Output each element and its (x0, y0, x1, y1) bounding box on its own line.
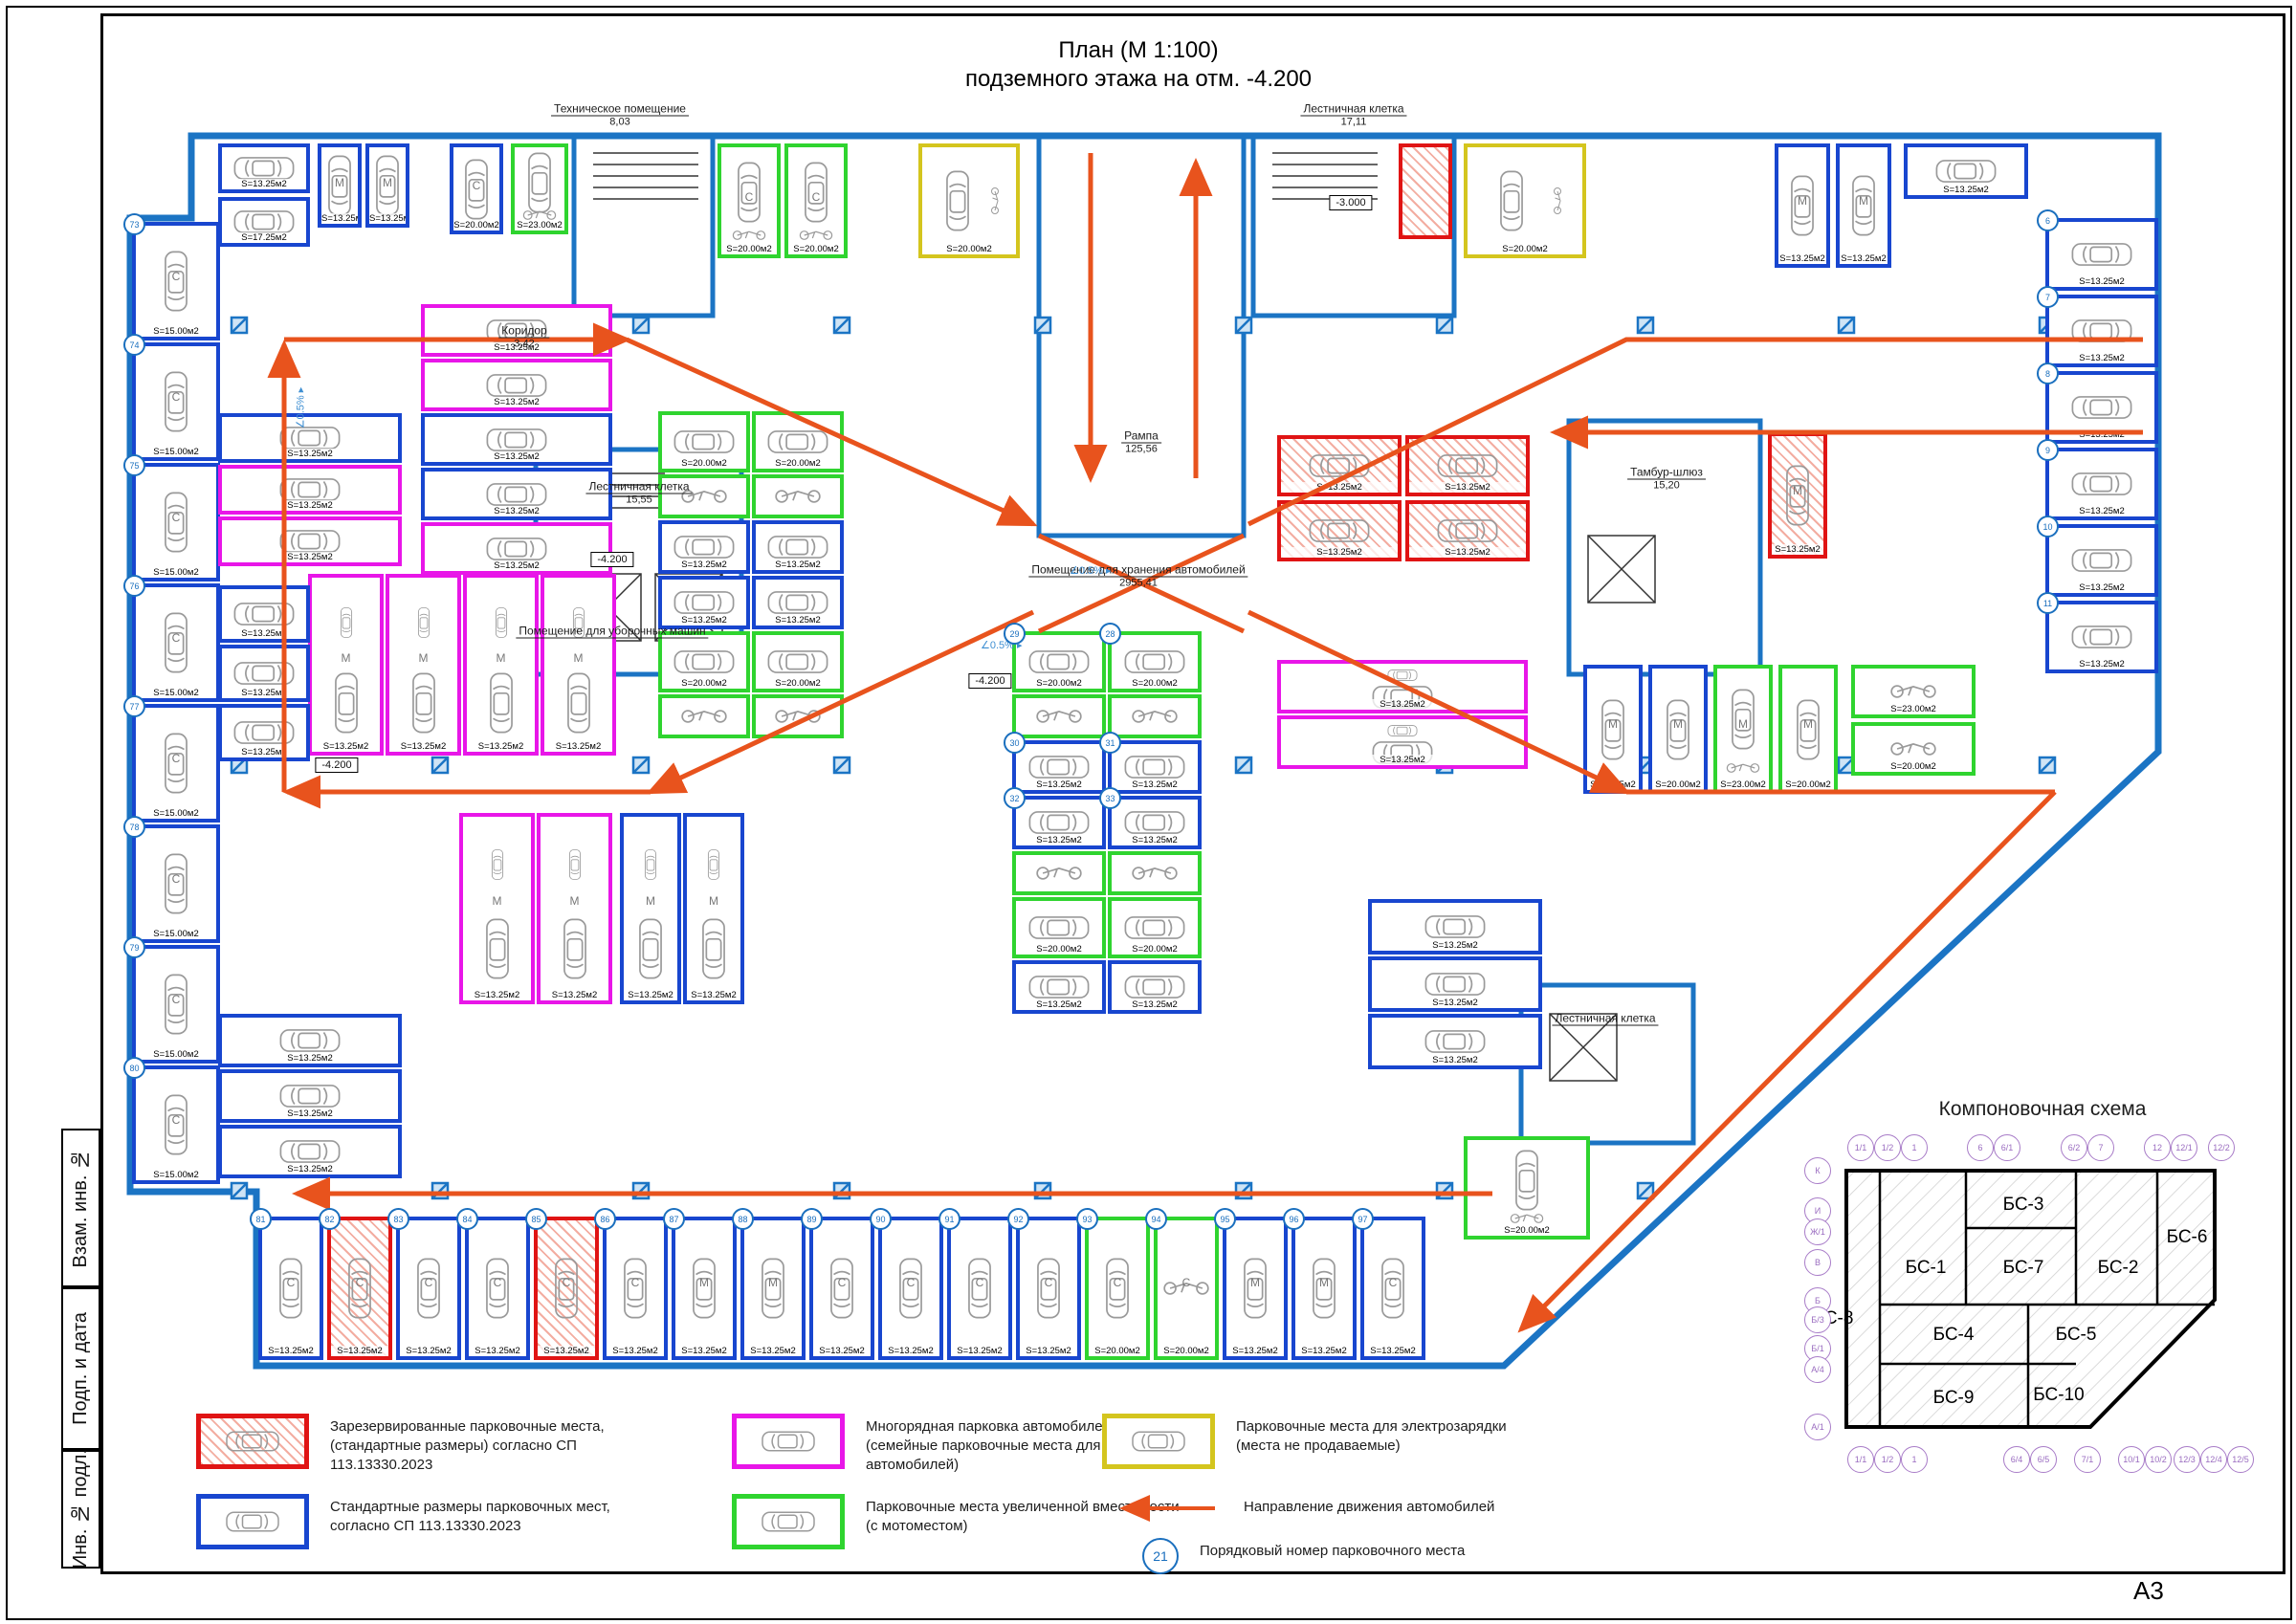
parking-stall: СS=15.00м2 (132, 824, 220, 943)
axis-bubble-10/2: 10/2 (2145, 1446, 2172, 1473)
car-top-view-icon (232, 657, 297, 690)
parking-stall: СS=20.00м2 (1154, 1217, 1219, 1360)
stall-area-label: S=20.00м2 (662, 678, 746, 689)
parking-stall: СS=20.00м2 (1085, 1217, 1150, 1360)
parking-stall (658, 694, 750, 738)
stall-number-bubble: 74 (123, 334, 145, 356)
parking-stall: МS=23.00м2 (1713, 665, 1773, 794)
axis-bubble-К: К (1804, 1157, 1831, 1184)
car-top-view-icon (485, 669, 518, 736)
stall-type-letter: М (768, 1276, 778, 1289)
stall-area-label: S=15.00м2 (136, 1170, 216, 1180)
axis-bubble-Б/3: Б/3 (1804, 1306, 1831, 1333)
stall-area-label: S=13.25м2 (1772, 544, 1823, 555)
stall-number-bubble: 84 (456, 1208, 478, 1230)
parking-stall: S=20.00м2 (918, 143, 1020, 258)
stall-number-bubble: 32 (1004, 787, 1026, 809)
parking-stall: СS=15.00м2 (132, 342, 220, 461)
axis-bubble-12/5: 12/5 (2227, 1446, 2254, 1473)
parking-stall: МS=13.25м2 (1223, 1217, 1288, 1360)
stall-type-letter: С (287, 1276, 296, 1289)
parking-stall: СS=13.25м2 (396, 1217, 461, 1360)
stall-type-letter: С (172, 752, 181, 765)
stall-type-letter: М (570, 894, 580, 908)
parking-stall: S=13.25м2 (218, 516, 402, 566)
parking-stall: СS=15.00м2 (132, 945, 220, 1064)
car-top-view-icon (672, 646, 737, 678)
parking-stall: МS=13.25м2 (1583, 665, 1643, 794)
parking-stall: СS=15.00м2 (132, 463, 220, 582)
stall-area-label: S=13.25м2 (687, 990, 740, 1000)
stall-area-label: S=13.25м2 (1295, 1346, 1353, 1356)
parking-stall: S=20.00м2 (1012, 897, 1106, 958)
stall-area-label: S=13.25м2 (331, 1346, 388, 1356)
stall-type-letter: М (1803, 717, 1813, 731)
legend-swatch-extended (732, 1494, 845, 1549)
car-top-view-icon (765, 426, 830, 458)
parking-stall: S=13.25м2 (421, 522, 612, 575)
stall-area-label: S=23.00м2 (1855, 704, 1972, 714)
car-top-view-icon (1307, 515, 1372, 547)
car-top-view-icon (1122, 971, 1187, 1003)
motorcycle-icon (770, 706, 826, 727)
stall-type-letter: М (1798, 194, 1807, 208)
parking-stall: S=20.00м2 (1012, 631, 1106, 692)
car-top-view-icon (2069, 315, 2134, 347)
car-top-view-icon (559, 848, 591, 881)
parking-stall: МS=13.25м2 (672, 1217, 737, 1360)
car-top-view-icon (232, 716, 297, 749)
parking-stall: S=13.25м2 (2045, 371, 2158, 444)
motorcycle-icon (1127, 863, 1182, 884)
car-top-view-icon (765, 586, 830, 619)
parking-stall: S=13.25м2 (1277, 660, 1528, 713)
stall-area-label: S=20.00м2 (1112, 678, 1198, 689)
car-top-view-icon (1387, 714, 1419, 747)
stall-number-bubble: 75 (123, 454, 145, 476)
motorcycle-icon (1551, 187, 1564, 215)
car-top-view-icon (232, 598, 297, 630)
parking-stall: СS=13.25м2 (947, 1217, 1012, 1360)
parking-stall: МS=13.25м2 (459, 813, 535, 1004)
parking-stall: МS=13.25м2 (620, 813, 681, 1004)
parking-stall: СS=13.25м2 (1360, 1217, 1425, 1360)
parking-stall: S=13.25м2 (218, 413, 402, 463)
motorcycle-icon (728, 228, 770, 243)
stall-area-label: S=15.00м2 (136, 326, 216, 337)
parking-stall: S=13.25м2 (658, 576, 750, 629)
car-top-view-icon (1122, 806, 1187, 839)
elevation-mark: -4.200 (315, 757, 358, 773)
parking-stall: S=13.25м2 (1904, 143, 2028, 199)
legend-text: Направление движения автомобилей (1244, 1494, 1494, 1517)
parking-stall (1012, 694, 1106, 738)
stall-area-label: S=20.00м2 (756, 458, 840, 469)
stall-area-label: S=20.00м2 (721, 244, 777, 254)
stall-type-letter: С (356, 1276, 364, 1289)
legend-item-number: 21Порядковый номер парковочного места (1102, 1538, 1465, 1574)
stall-area-label: S=15.00м2 (136, 808, 216, 819)
stall-area-label: S=15.00м2 (136, 929, 216, 939)
stall-number-bubble: 92 (1007, 1208, 1029, 1230)
parking-stall: СS=20.00м2 (784, 143, 848, 258)
stall-type-letter: С (563, 1276, 571, 1289)
parking-stall: СS=15.00м2 (132, 1065, 220, 1184)
car-top-view-icon (2069, 621, 2134, 653)
stall-area-label: S=20.00м2 (922, 244, 1016, 254)
parking-stall: МS=20.00м2 (1648, 665, 1708, 794)
car-top-view-icon (1027, 971, 1092, 1003)
stall-number-bubble: 10 (2037, 516, 2059, 538)
parking-stall: S=23.00м2 (1851, 665, 1976, 718)
axis-bubble-7/1: 7/1 (2074, 1446, 2101, 1473)
stall-area-label: S=13.25м2 (756, 560, 840, 570)
parking-stall: S=13.25м2 (1277, 715, 1528, 769)
parking-stall: МS=13.25м2 (740, 1217, 806, 1360)
axis-bubble-6/1: 6/1 (1994, 1134, 2020, 1161)
axis-bubble-12/1: 12/1 (2171, 1134, 2197, 1161)
stall-area-label: S=20.00м2 (1158, 1346, 1215, 1356)
car-top-view-icon (408, 669, 440, 736)
axis-bubble-6/2: 6/2 (2061, 1134, 2087, 1161)
stall-type-letter: С (172, 270, 181, 283)
stall-area-label: S=13.25м2 (1908, 185, 2024, 195)
parking-stall (1012, 851, 1106, 895)
stall-number-bubble: 93 (1076, 1208, 1098, 1230)
stall-number-bubble: 81 (250, 1208, 272, 1230)
stall-number-bubble: 77 (123, 695, 145, 717)
scheme-block-БС-10: БС-10 (2033, 1385, 2084, 1406)
stall-area-label: S=15.00м2 (136, 1049, 216, 1060)
stall-type-letter: С (172, 511, 181, 524)
slope-mark: ∠0.5% ▸ (1070, 564, 1112, 577)
car-top-view-icon (481, 848, 514, 881)
parking-stall: S=13.25м2 (421, 413, 612, 466)
parking-stall: S=20.00м2 (1108, 631, 1202, 692)
stall-area-label: S=13.25м2 (222, 1053, 398, 1064)
motorcycle-icon (1722, 760, 1764, 776)
room-label: Лестничная клетка17,11 (1300, 102, 1406, 128)
stall-type-letter: М (1859, 194, 1868, 208)
parking-stall: S=13.25м2 (1012, 960, 1106, 1014)
parking-stall: S=13.25м2 (1368, 899, 1542, 955)
parking-stall: S=13.25м2 (752, 520, 844, 574)
stall-type-letter: М (497, 651, 506, 665)
car-top-view-icon (277, 1080, 342, 1112)
car-top-view-icon (697, 848, 730, 881)
legend-text: Парковочные места для электрозарядки (ме… (1236, 1414, 1552, 1456)
room-label: Помещение для уборочных машин (516, 625, 708, 639)
car-top-view-icon (672, 426, 737, 458)
stall-area-label: S=13.25м2 (744, 1346, 802, 1356)
stall-area-label: S=13.25м2 (262, 1346, 320, 1356)
scheme-block-БС-3: БС-3 (2003, 1195, 2044, 1216)
stall-area-label: S=13.25м2 (1281, 482, 1398, 493)
stall-number-bubble: 90 (870, 1208, 892, 1230)
stall-area-label: S=20.00м2 (1016, 944, 1102, 955)
parking-stall: S=23.00м2 (511, 143, 568, 234)
stall-area-label: S=13.25м2 (425, 451, 608, 462)
stall-number-bubble: 28 (1099, 623, 1121, 645)
stall-area-label: S=13.25м2 (467, 741, 535, 752)
stall-area-label: S=13.25м2 (2049, 429, 2154, 440)
stall-area-label: S=13.25м2 (312, 741, 380, 752)
direction-arrow-icon (1110, 1494, 1223, 1523)
motorcycle-icon (1031, 706, 1087, 727)
car-top-view-icon (563, 669, 595, 736)
car-top-view-icon (559, 915, 591, 982)
parking-stall: МS=20.00м2 (1778, 665, 1838, 794)
stall-type-letter: С (838, 1276, 847, 1289)
axis-bubble-1/2: 1/2 (1874, 1446, 1901, 1473)
parking-stall: МS=13.25м2 (683, 813, 744, 1004)
room-label: Лестничная клетка (1552, 1012, 1658, 1026)
room-label: Рампа125,56 (1121, 429, 1161, 455)
stall-type-letter: М (1738, 717, 1748, 731)
parking-stall: МS=13.25м2 (541, 574, 616, 756)
stall-area-label: S=13.25м2 (1016, 779, 1102, 790)
stall-type-letter: М (1608, 717, 1618, 731)
parking-stall (1399, 143, 1452, 239)
parking-stall (1108, 694, 1202, 738)
car-top-view-icon (1122, 646, 1187, 678)
car-top-view-icon (1423, 911, 1488, 943)
parking-stall: СS=15.00м2 (132, 583, 220, 702)
car-top-view-icon (1027, 806, 1092, 839)
car-top-view-icon (485, 607, 518, 640)
elevation-mark: -4.200 (968, 673, 1011, 689)
stall-number-bubble: 86 (594, 1208, 616, 1230)
parking-stall: S=20.00м2 (658, 411, 750, 472)
stall-area-label: S=20.00м2 (756, 678, 840, 689)
stall-area-label: S=20.00м2 (1016, 678, 1102, 689)
axis-bubble-7: 7 (2087, 1134, 2114, 1161)
stall-area-label: S=20.00м2 (1782, 779, 1834, 790)
parking-stall: МS=13.25м2 (1836, 143, 1891, 268)
stall-type-letter: М (342, 651, 351, 665)
stall-number-bubble: 78 (123, 816, 145, 838)
stall-area-label: S=13.25м2 (1112, 779, 1198, 790)
stall-area-label: S=13.25м2 (222, 1108, 398, 1119)
stall-type-letter: С (907, 1276, 916, 1289)
stall-area-label: S=13.25м2 (544, 741, 612, 752)
stall-area-label: S=20.00м2 (662, 458, 746, 469)
scheme-block-БС-9: БС-9 (1933, 1388, 1975, 1409)
room-label: Тамбур-шлюз15,20 (1627, 466, 1706, 492)
stall-type-letter: М (699, 1276, 709, 1289)
car-top-view-icon (277, 1135, 342, 1168)
stall-number-bubble: 85 (525, 1208, 547, 1230)
motorcycle-icon (795, 228, 837, 243)
stall-type-letter: С (745, 190, 754, 204)
room-label: Техническое помещение8,03 (551, 102, 689, 128)
stall-number-bubble: 83 (387, 1208, 409, 1230)
axis-bubble-12/3: 12/3 (2174, 1446, 2200, 1473)
parking-stall: S=13.25м2 (1108, 796, 1202, 849)
parking-stall: S=20.00м2 (1464, 1136, 1590, 1240)
stall-area-label: S=13.25м2 (1372, 998, 1538, 1008)
stall-area-label: S=13.25м2 (222, 552, 398, 562)
stall-type-letter: М (1793, 484, 1802, 497)
stall-area-label: S=13.25м2 (1409, 482, 1526, 493)
stall-number-bubble: 6 (2037, 209, 2059, 231)
car-top-view-icon (1387, 659, 1419, 691)
stall-number-bubble: 11 (2037, 592, 2059, 614)
parking-stall: S=13.25м2 (1368, 956, 1542, 1012)
stall-type-letter: С (172, 993, 181, 1006)
stall-area-label: S=13.25м2 (321, 213, 358, 224)
stall-type-letter: С (631, 1276, 640, 1289)
stall-area-label: S=13.25м2 (1016, 835, 1102, 845)
stall-type-letter: М (574, 651, 584, 665)
elevation-mark: -4.200 (590, 552, 633, 567)
scheme-title: Компоновочная схема (1789, 1098, 2296, 1121)
stall-area-label: S=13.25м2 (222, 628, 306, 639)
car-top-view-icon (1933, 155, 1998, 187)
parking-stall: S=13.25м2 (1108, 740, 1202, 794)
stall-type-letter: С (425, 1276, 433, 1289)
car-top-view-icon (2069, 238, 2134, 271)
parking-stall: СS=20.00м2 (450, 143, 503, 234)
car-top-view-icon (2069, 391, 2134, 424)
stall-type-letter: С (1389, 1276, 1398, 1289)
stall-type-letter: С (172, 390, 181, 404)
stall-area-label: S=13.25м2 (369, 213, 406, 224)
parking-stall: МS=13.25м2 (1291, 1217, 1357, 1360)
parking-stall: S=13.25м2 (752, 576, 844, 629)
legend-text: Порядковый номер парковочного места (1200, 1538, 1465, 1561)
stall-number-bubble: 94 (1145, 1208, 1167, 1230)
stall-area-label: S=13.25м2 (1372, 1055, 1538, 1065)
car-top-view-icon (1027, 911, 1092, 944)
parking-stall: МS=13.25м2 (365, 143, 409, 228)
stall-area-label: S=13.25м2 (2049, 659, 2154, 669)
parking-stall: S=13.25м2 (1012, 796, 1106, 849)
slope-mark: ∠0.5% ▸ (294, 387, 306, 429)
motorcycle-icon (1031, 863, 1087, 884)
stall-area-label: S=13.25м2 (675, 1346, 733, 1356)
stall-area-label: S=17.25м2 (222, 232, 306, 243)
legend-swatch-standard (196, 1494, 309, 1549)
parking-stall: S=20.00м2 (752, 411, 844, 472)
parking-stall: S=13.25м2 (1277, 500, 1402, 561)
parking-stall: S=13.25м2 (1368, 1014, 1542, 1069)
axis-bubble-10/1: 10/1 (2118, 1446, 2145, 1473)
axis-bubble-12/4: 12/4 (2200, 1446, 2227, 1473)
car-top-view-icon (1122, 751, 1187, 783)
stall-area-label: S=15.00м2 (136, 688, 216, 698)
car-top-view-icon (765, 646, 830, 678)
car-top-view-icon (1027, 646, 1092, 678)
motorcycle-icon (770, 486, 826, 507)
car-top-view-icon (1435, 450, 1500, 482)
axis-bubble-Ж/1: Ж/1 (1804, 1218, 1831, 1245)
stall-number-bubble: 21 (1142, 1538, 1179, 1574)
stall-area-label: S=13.25м2 (2049, 582, 2154, 593)
car-top-view-icon (1435, 515, 1500, 547)
parking-stall: S=13.25м2 (1405, 435, 1530, 496)
car-top-view-icon (1027, 751, 1092, 783)
stall-number-bubble: 97 (1352, 1208, 1374, 1230)
stall-type-letter: С (1182, 1276, 1191, 1289)
stall-area-label: S=20.00м2 (1855, 761, 1972, 772)
stall-area-label: S=13.25м2 (1409, 547, 1526, 558)
stall-area-label: S=20.00м2 (1112, 944, 1198, 955)
stall-area-label: S=20.00м2 (1652, 779, 1704, 790)
parking-stall: МS=13.25м2 (463, 574, 539, 756)
stall-area-label: S=13.25м2 (469, 1346, 526, 1356)
car-top-view-icon (224, 1427, 281, 1456)
parking-stall: S=13.25м2 (218, 1125, 402, 1178)
parking-stall: S=13.25м2 (218, 465, 402, 515)
axis-bubble-В: В (1804, 1249, 1831, 1276)
stall-type-letter: С (172, 1113, 181, 1127)
parking-stall: S=20.00м2 (1108, 897, 1202, 958)
stall-area-label: S=20.00м2 (788, 244, 844, 254)
stall-area-label: S=13.25м2 (222, 747, 306, 757)
stall-area-label: S=20.00м2 (1468, 1225, 1586, 1236)
stall-area-label: S=20.00м2 (1089, 1346, 1146, 1356)
stall-type-letter: С (812, 190, 821, 204)
car-top-view-icon (1511, 1147, 1543, 1214)
stall-type-letter: С (494, 1276, 502, 1289)
stall-number-bubble: 88 (732, 1208, 754, 1230)
stall-area-label: S=13.25м2 (1112, 999, 1198, 1010)
parking-stall: МS=13.25м2 (318, 143, 362, 228)
room-label: Лестничная клетка15,55 (585, 480, 692, 506)
stall-number-bubble: 30 (1004, 732, 1026, 754)
parking-stall: S=17.25м2 (218, 197, 310, 247)
scheme-block-БС-6: БС-6 (2167, 1227, 2208, 1248)
axis-bubble-А/4: А/4 (1804, 1356, 1831, 1383)
stall-area-label: S=13.25м2 (222, 500, 398, 511)
stall-area-label: S=13.25м2 (1587, 779, 1639, 790)
legend-item-ev: Парковочные места для электрозарядки (ме… (1102, 1414, 1552, 1469)
car-top-view-icon (1423, 1025, 1488, 1058)
stall-area-label: S=13.25м2 (756, 615, 840, 625)
car-top-view-icon (481, 915, 514, 982)
car-top-view-icon (1495, 167, 1528, 234)
stall-number-bubble: 31 (1099, 732, 1121, 754)
axis-bubble-6/4: 6/4 (2003, 1446, 2030, 1473)
parking-stall: S=13.25м2 (218, 1014, 402, 1067)
stall-area-label: S=13.25м2 (1020, 1346, 1077, 1356)
parking-stall: СS=13.25м2 (809, 1217, 874, 1360)
car-top-view-icon (224, 1507, 281, 1536)
stall-type-letter: С (172, 631, 181, 645)
stall-area-label: S=13.25м2 (1372, 940, 1538, 951)
legend-item-direction: Направление движения автомобилей (1110, 1494, 1494, 1523)
stall-area-label: S=20.00м2 (1468, 244, 1582, 254)
stall-area-label: S=13.25м2 (1226, 1346, 1284, 1356)
car-top-view-icon (634, 915, 667, 982)
parking-stall: S=20.00м2 (658, 631, 750, 692)
stall-area-label: S=13.25м2 (222, 449, 398, 459)
parking-stall: S=13.25м2 (2045, 448, 2158, 520)
stall-area-label: S=13.25м2 (1840, 253, 1888, 264)
axis-bubble-6/5: 6/5 (2030, 1446, 2057, 1473)
axis-bubble-А/1: А/1 (1804, 1414, 1831, 1440)
scheme-block-БС-5: БС-5 (2056, 1325, 2097, 1346)
stall-type-letter: С (1045, 1276, 1053, 1289)
stall-area-label: S=13.25м2 (1778, 253, 1826, 264)
scheme-drawing (1789, 1123, 2296, 1544)
legend-swatch-ev (1102, 1414, 1215, 1469)
stall-area-label: S=13.25м2 (425, 506, 608, 516)
axis-bubble-1: 1 (1901, 1446, 1928, 1473)
stall-area-label: S=13.25м2 (1364, 1346, 1422, 1356)
parking-stall: S=13.25м2 (421, 468, 612, 520)
